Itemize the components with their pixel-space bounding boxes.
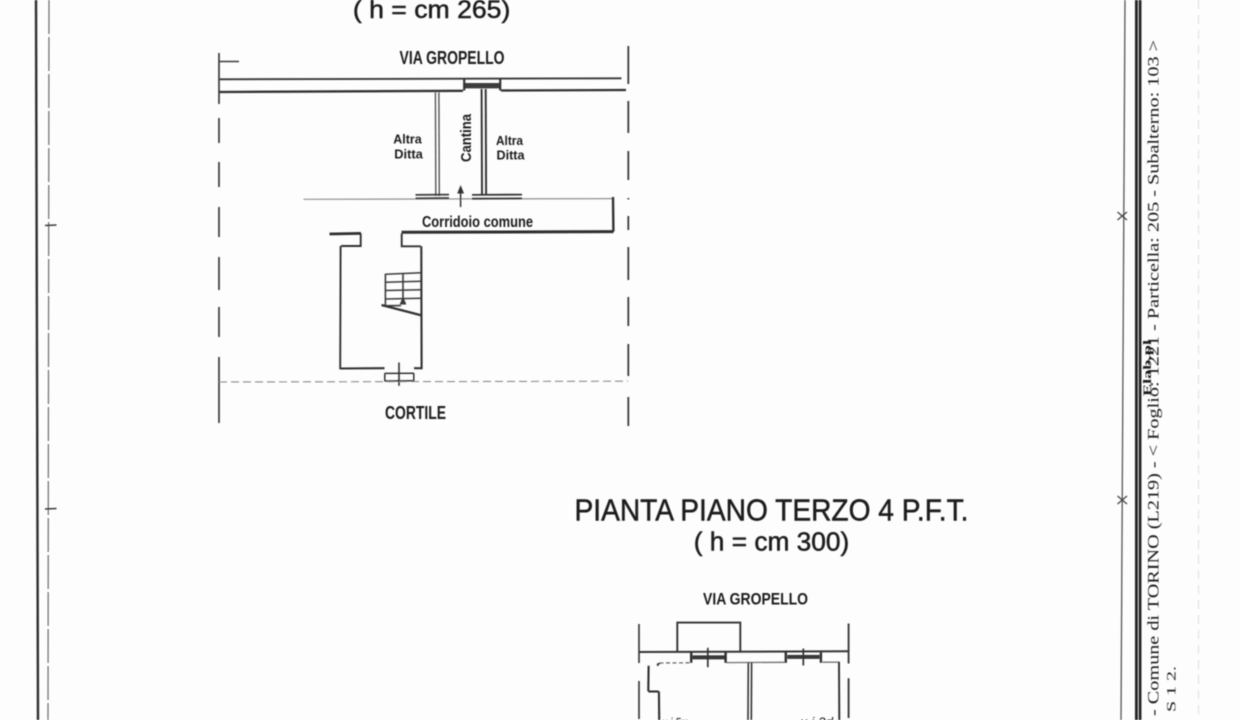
- svg-text:S 1 2.: S 1 2.: [1164, 666, 1179, 712]
- svg-text:Corridoio comune: Corridoio comune: [422, 214, 533, 231]
- svg-text:( h = cm 265): ( h = cm 265): [353, 0, 511, 24]
- svg-text:Cantina: Cantina: [458, 113, 475, 162]
- svg-text:VIA GROPELLO: VIA GROPELLO: [703, 590, 808, 609]
- svg-text:PIANTA PIANO TERZO 4 P.F.T.: PIANTA PIANO TERZO 4 P.F.T.: [575, 493, 969, 528]
- svg-text:CORTILE: CORTILE: [385, 403, 446, 423]
- svg-text:Ditta: Ditta: [394, 148, 424, 162]
- svg-text:Altra: Altra: [496, 134, 524, 148]
- svg-text:Altra: Altra: [393, 133, 423, 147]
- svg-text:u.i.3d: u.i.3d: [800, 715, 834, 720]
- svg-text:VIA GROPELLO: VIA GROPELLO: [400, 48, 505, 68]
- svg-text:Elab.pl: Elab.pl: [1140, 339, 1154, 396]
- svg-text:Ditta: Ditta: [497, 149, 526, 163]
- svg-text:( h = cm 300): ( h = cm 300): [694, 528, 850, 556]
- svg-text:u.i.5m: u.i.5m: [662, 715, 689, 720]
